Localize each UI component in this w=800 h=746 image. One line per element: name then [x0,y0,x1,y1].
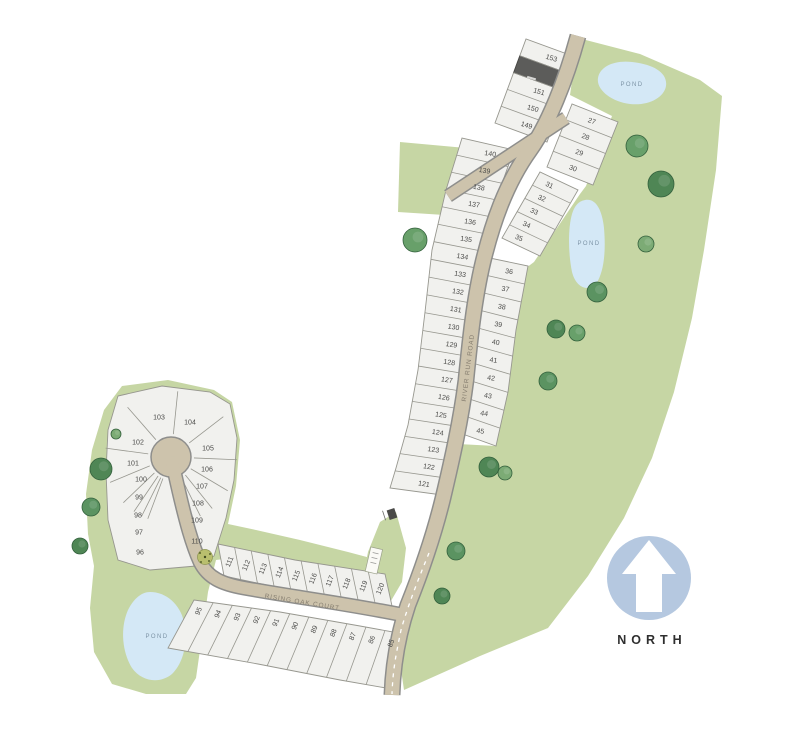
lot-number: 99 [135,494,143,501]
tree-highlight [440,590,447,597]
lot-number: 103 [153,414,165,421]
lot-number: 100 [135,476,147,483]
tree-highlight [487,460,496,469]
site-plan: POND POND POND RIVER RUN ROAD RISING OAK… [0,0,800,746]
site-plan-svg: POND POND POND RIVER RUN ROAD RISING OAK… [0,0,800,746]
tree-highlight [78,540,85,547]
tree-highlight [413,232,424,243]
pond-label-middle: POND [578,241,601,247]
tree-highlight [89,501,97,509]
lot-number: 109 [191,517,203,524]
tree-highlight [99,461,109,471]
lot-number: 45 [476,428,485,436]
tree-highlight [554,323,562,331]
lot-number: 41 [489,357,498,365]
lot-number: 102 [132,439,144,446]
landscaped-tree-marker [198,550,213,565]
tree-highlight [575,327,582,334]
lot-number: 101 [127,460,139,467]
lot-number: 42 [487,375,496,383]
lot-number: 107 [196,483,208,490]
tree-highlight [658,175,670,187]
tree-highlight [595,285,604,294]
lot-number: 97 [135,529,143,536]
north-compass: NORTH [607,536,691,647]
lot-number: 105 [202,445,214,452]
lot-number: 40 [491,339,500,347]
lot-number: 106 [201,466,213,473]
tree-highlight [504,468,510,474]
tree-highlight [635,138,645,148]
lot-number: 44 [480,410,489,418]
lot-number: 104 [184,419,196,426]
north-label: NORTH [617,633,686,647]
lot-number: 96 [136,549,144,556]
lot-number: 108 [192,500,204,507]
lot-number: 36 [505,268,514,276]
lot-number: 43 [483,392,492,400]
lot-number: 39 [494,321,503,329]
tree-highlight [115,431,120,436]
lot-number: 110 [191,538,202,545]
tree-highlight [454,545,462,553]
pond-label-top: POND [621,82,644,88]
tree-highlight [644,238,651,245]
lot-number: 98 [134,512,142,519]
lot-number: 37 [501,286,510,294]
pond-label-bottom: POND [146,634,169,640]
tree-highlight [546,375,554,383]
lot-number: 38 [497,303,506,311]
